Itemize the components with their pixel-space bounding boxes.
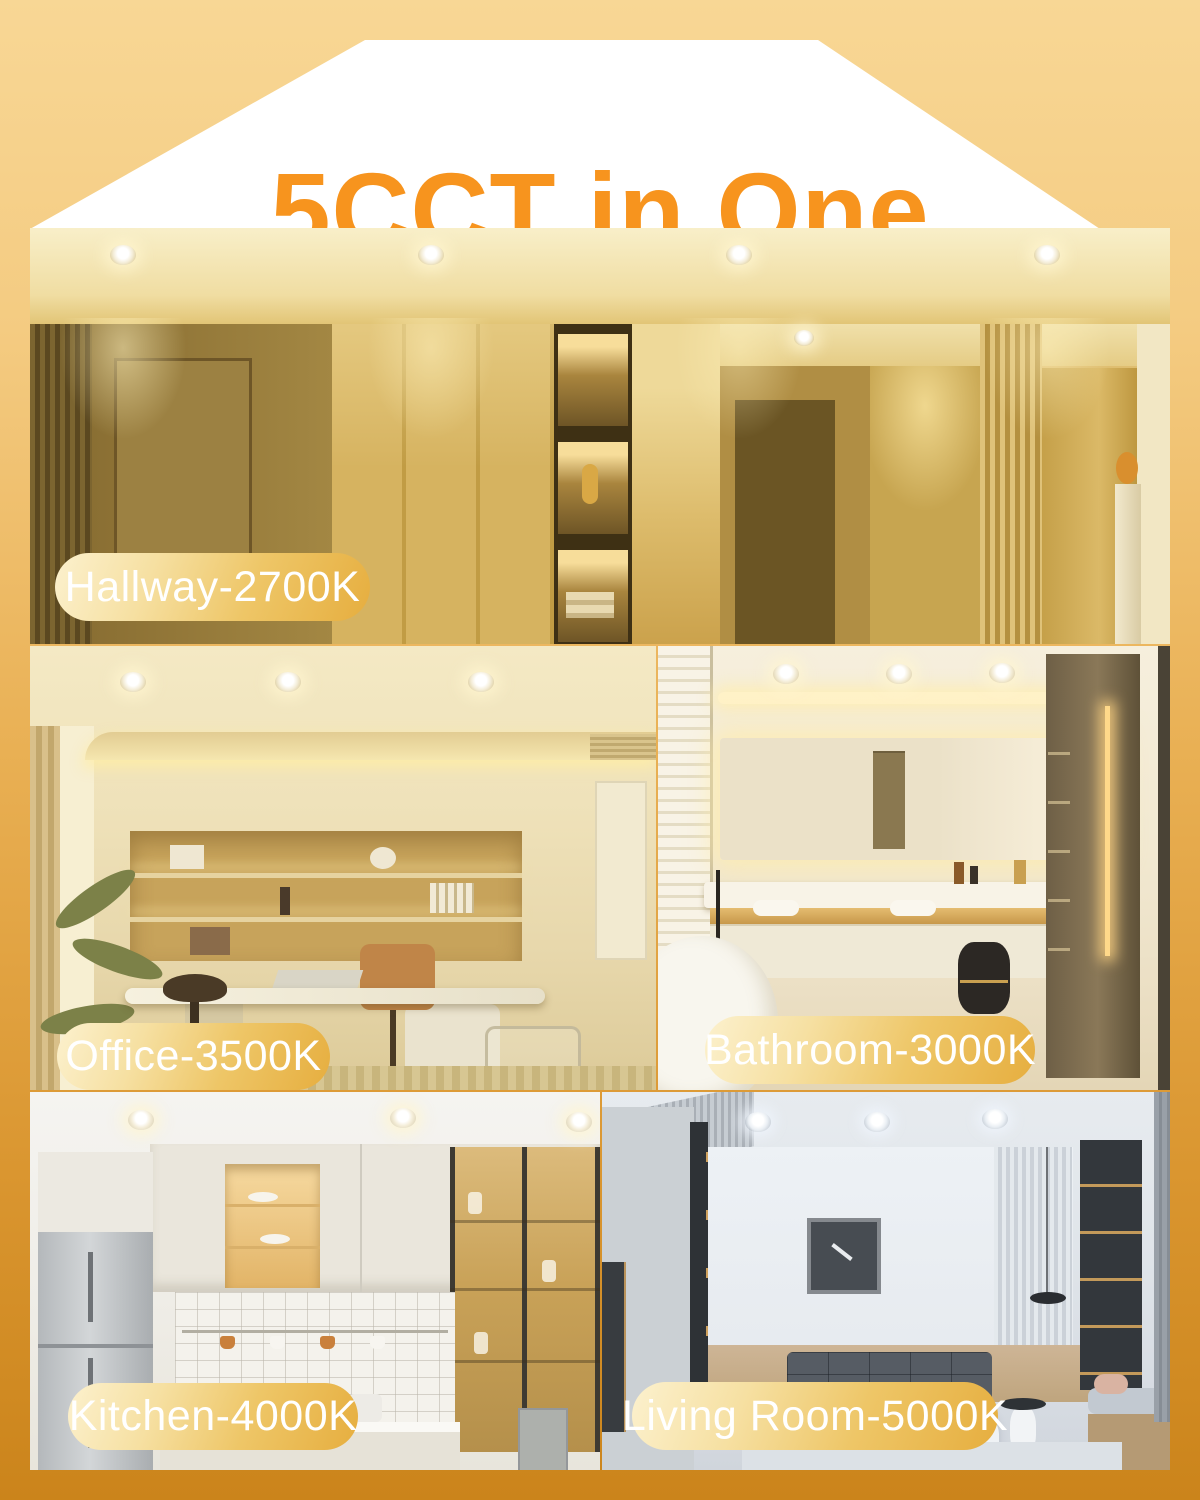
recessed-light bbox=[468, 672, 494, 692]
book-stack bbox=[566, 592, 614, 618]
photo-kitchen: Kitchen-4000K bbox=[30, 1092, 600, 1470]
mirror-reflection-niche bbox=[873, 751, 905, 849]
recessed-light bbox=[886, 664, 912, 684]
utensil-rail bbox=[182, 1330, 448, 1333]
glass-shelf bbox=[450, 1288, 600, 1291]
marble-pedestal bbox=[1115, 484, 1141, 644]
curtain bbox=[1154, 1092, 1170, 1422]
air-vent bbox=[590, 734, 656, 760]
recessed-light bbox=[745, 1112, 771, 1132]
cabinet-shelves bbox=[1048, 706, 1070, 956]
ceiling bbox=[30, 228, 1170, 324]
recessed-light bbox=[390, 1108, 416, 1128]
shelf-board bbox=[130, 873, 522, 878]
product-infographic: 5CCT in One Hallway-2700K bbox=[0, 0, 1200, 1500]
towel bbox=[753, 900, 799, 916]
hanging-cup bbox=[220, 1336, 235, 1349]
recessed-light bbox=[275, 672, 301, 692]
led-strip bbox=[1105, 706, 1110, 956]
glassware bbox=[542, 1260, 556, 1282]
dishes bbox=[260, 1234, 290, 1244]
vase bbox=[370, 847, 396, 869]
books bbox=[430, 883, 474, 913]
recessed-light bbox=[120, 672, 146, 692]
recessed-light bbox=[128, 1110, 154, 1130]
photo-bathroom: Bathroom-3000K bbox=[658, 646, 1170, 1090]
recessed-light bbox=[982, 1109, 1008, 1129]
towel bbox=[890, 900, 936, 916]
recessed-light bbox=[989, 663, 1015, 683]
room-label-bathroom: Bathroom-3000K bbox=[705, 1016, 1035, 1084]
photo-hallway: Hallway-2700K bbox=[30, 228, 1170, 644]
title-banner: 5CCT in One bbox=[0, 0, 1200, 229]
glassware bbox=[468, 1192, 482, 1214]
cabinet-seam bbox=[360, 1144, 362, 1292]
hanging-cup bbox=[270, 1336, 285, 1349]
fridge-top-cabinet bbox=[38, 1152, 153, 1232]
laptop bbox=[272, 970, 363, 990]
stool bbox=[958, 942, 1010, 1014]
bottle bbox=[954, 862, 964, 884]
room-label-text: Office-3500K bbox=[65, 1032, 321, 1081]
bottle bbox=[1014, 860, 1026, 884]
room-label-office: Office-3500K bbox=[57, 1023, 330, 1090]
figurine bbox=[280, 887, 290, 915]
cabinet-mullion bbox=[595, 1147, 600, 1452]
niche-shelf bbox=[225, 1246, 320, 1249]
recessed-light bbox=[773, 664, 799, 684]
recessed-light bbox=[566, 1112, 592, 1132]
decor-object bbox=[170, 845, 204, 869]
room-label-text: Hallway-2700K bbox=[65, 563, 361, 612]
room-label-text: Bathroom-3000K bbox=[704, 1026, 1036, 1075]
pillow bbox=[1094, 1374, 1128, 1394]
cove-light bbox=[85, 732, 656, 760]
glassware bbox=[474, 1332, 488, 1354]
glass-shelf bbox=[450, 1360, 600, 1363]
glass-shelf bbox=[450, 1220, 600, 1223]
recessed-light bbox=[864, 1112, 890, 1132]
door-frame bbox=[1158, 646, 1170, 1090]
recessed-light bbox=[794, 330, 814, 346]
shelf-board bbox=[130, 917, 522, 922]
fridge-handle bbox=[88, 1252, 93, 1322]
lit-dish-niche bbox=[225, 1164, 320, 1288]
table-lamp bbox=[163, 974, 227, 1002]
room-label-text: Kitchen-4000K bbox=[69, 1392, 358, 1441]
pendant-cord bbox=[1046, 1147, 1048, 1295]
curtain bbox=[30, 726, 60, 1090]
light-pools bbox=[30, 318, 1170, 498]
room-label-text: Living Room-5000K bbox=[622, 1392, 1008, 1441]
room-label-kitchen: Kitchen-4000K bbox=[68, 1383, 358, 1450]
recessed-light bbox=[110, 245, 136, 265]
stool-band bbox=[960, 980, 1008, 983]
mini-fridge bbox=[518, 1408, 568, 1470]
dishes bbox=[248, 1192, 278, 1202]
bookshelf-niche bbox=[130, 831, 522, 961]
photo-office: Office-3500K bbox=[30, 646, 656, 1090]
shelf-accent-lights bbox=[1080, 1140, 1142, 1390]
floor-faucet bbox=[716, 870, 720, 946]
cabinet-mullion bbox=[522, 1147, 527, 1452]
fridge-door-split bbox=[38, 1344, 153, 1348]
wall-poster bbox=[595, 781, 647, 960]
recessed-light bbox=[418, 245, 444, 265]
recessed-light bbox=[1034, 245, 1060, 265]
room-label-hallway: Hallway-2700K bbox=[55, 553, 370, 621]
pot bbox=[190, 927, 230, 955]
niche-shelf bbox=[225, 1204, 320, 1207]
hanging-cup bbox=[370, 1336, 385, 1349]
bottle bbox=[970, 866, 978, 884]
hanging-cup bbox=[320, 1336, 335, 1349]
room-label-living-room: Living Room-5000K bbox=[632, 1382, 998, 1450]
pendant-lamp bbox=[1030, 1292, 1066, 1304]
photo-living-room: Living Room-5000K bbox=[602, 1092, 1170, 1470]
recessed-light bbox=[726, 245, 752, 265]
